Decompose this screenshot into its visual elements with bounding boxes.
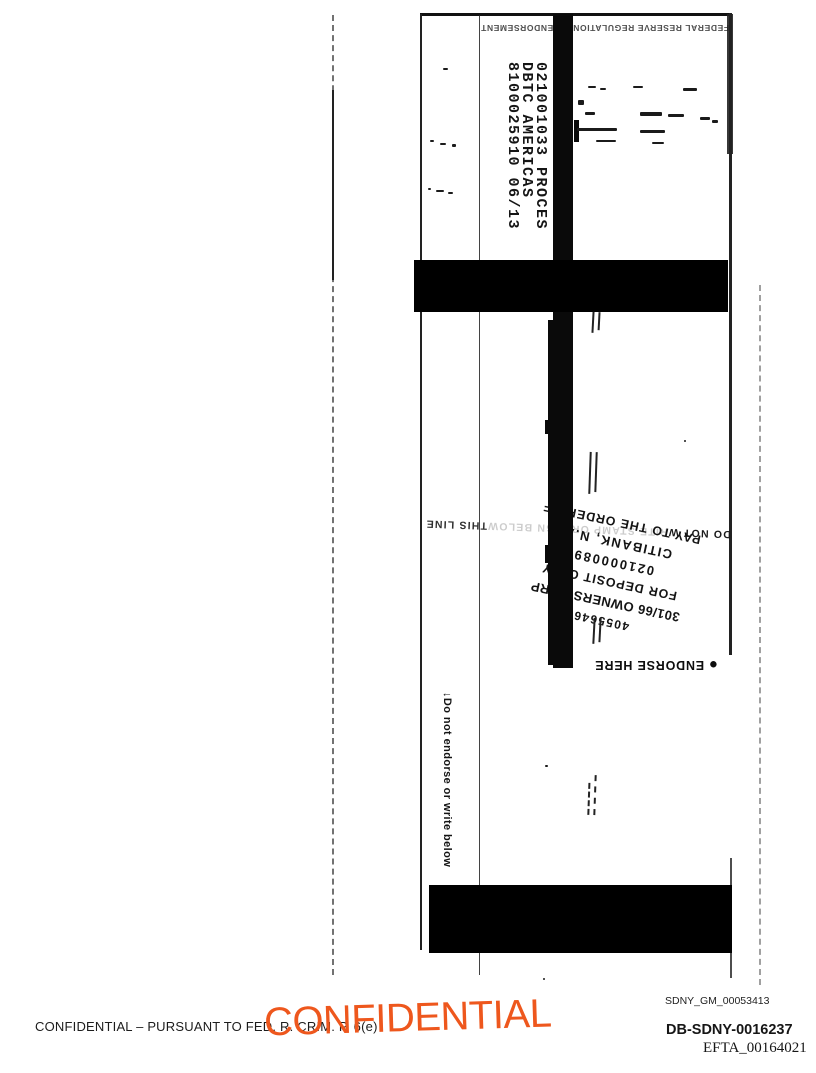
- scan-noise: [600, 88, 606, 90]
- scan-noise: [668, 114, 684, 117]
- scan-noise: [700, 117, 710, 120]
- endorse-here-label: ● ENDORSE HERE: [600, 655, 718, 675]
- bates-number-efta: EFTA_00164021: [703, 1040, 807, 1057]
- do-not-write-end: THIS LINE: [425, 513, 487, 531]
- confidential-stamp: CONFIDENTIAL: [263, 991, 552, 1045]
- fold-mark-2: [588, 452, 597, 494]
- scan-noise: [543, 978, 545, 980]
- right-page-edge-dashed-line: [759, 285, 761, 985]
- bates-number-sdny-gm: SDNY_GM_00053413: [665, 995, 769, 1007]
- scan-stripe-nub-2: [545, 545, 551, 563]
- endorse-here-text: ENDORSE HERE: [595, 658, 705, 672]
- scan-noise: [684, 440, 686, 442]
- scan-noise: [683, 88, 697, 91]
- fold-mark-1: [591, 312, 600, 333]
- bates-number-db-sdny: DB-SDNY-0016237: [666, 1022, 793, 1038]
- bank-endorsement-block: 021001033 PROCES DBTC AMERICAS 810002591…: [505, 62, 547, 262]
- scan-noise: [436, 190, 444, 192]
- scan-noise: [448, 192, 453, 194]
- scan-stripe-ragged-edge: [548, 320, 555, 665]
- scan-stripe-nub-3: [574, 120, 579, 142]
- scan-noise: [428, 188, 431, 190]
- endorsement-bank-name-line: DBTC AMERICAS: [519, 62, 533, 262]
- scan-stripe-nub-1: [545, 420, 550, 434]
- scan-noise: [712, 120, 718, 123]
- endorse-here-bullet-icon: ●: [708, 658, 718, 673]
- left-page-edge-solid-segment: [332, 90, 334, 280]
- check-right-border-lower-dash-2: [730, 950, 732, 978]
- scan-noise: [596, 140, 616, 142]
- scan-noise: [545, 765, 548, 767]
- scan-stripe: [553, 14, 573, 668]
- fold-mark-3: [592, 618, 601, 644]
- scan-noise: [640, 130, 665, 133]
- check-right-border-blotch: [727, 14, 733, 154]
- check-right-border-lower-dash-1: [730, 858, 732, 888]
- scan-noise: [578, 100, 584, 105]
- deposit-stamp: 4055646 301/66 OWNERS CORP FOR DEPOSIT O…: [496, 486, 728, 653]
- scan-noise: [577, 128, 617, 131]
- check-back-fine-print: FEDERAL RESERVE REGULATION CC ENDORSEMEN…: [437, 19, 729, 33]
- scan-noise: [585, 112, 595, 115]
- check-inner-rule-line: [479, 15, 480, 975]
- scan-noise: [430, 140, 434, 142]
- scan-noise: [588, 86, 596, 88]
- scan-noise: [652, 142, 664, 144]
- endorsement-account-date-line: 8100025910 06/13: [505, 62, 519, 262]
- scan-noise: [452, 144, 456, 147]
- redaction-bar-top: [414, 260, 728, 312]
- edge-note-do-not-endorse: ↓Do not endorse or write below: [437, 692, 453, 892]
- scanned-document-page: 021001033 PROCES DBTC AMERICAS 810002591…: [0, 0, 816, 1073]
- fold-mark-4: [587, 775, 596, 815]
- scan-noise: [440, 143, 446, 145]
- scan-noise: [640, 112, 662, 116]
- scan-noise: [443, 68, 448, 70]
- check-left-border: [420, 14, 422, 950]
- scan-noise: [633, 86, 643, 88]
- check-top-border: [420, 13, 731, 16]
- endorsement-routing-line: 021001033 PROCES: [533, 62, 547, 262]
- redaction-bar-bottom: [429, 885, 732, 953]
